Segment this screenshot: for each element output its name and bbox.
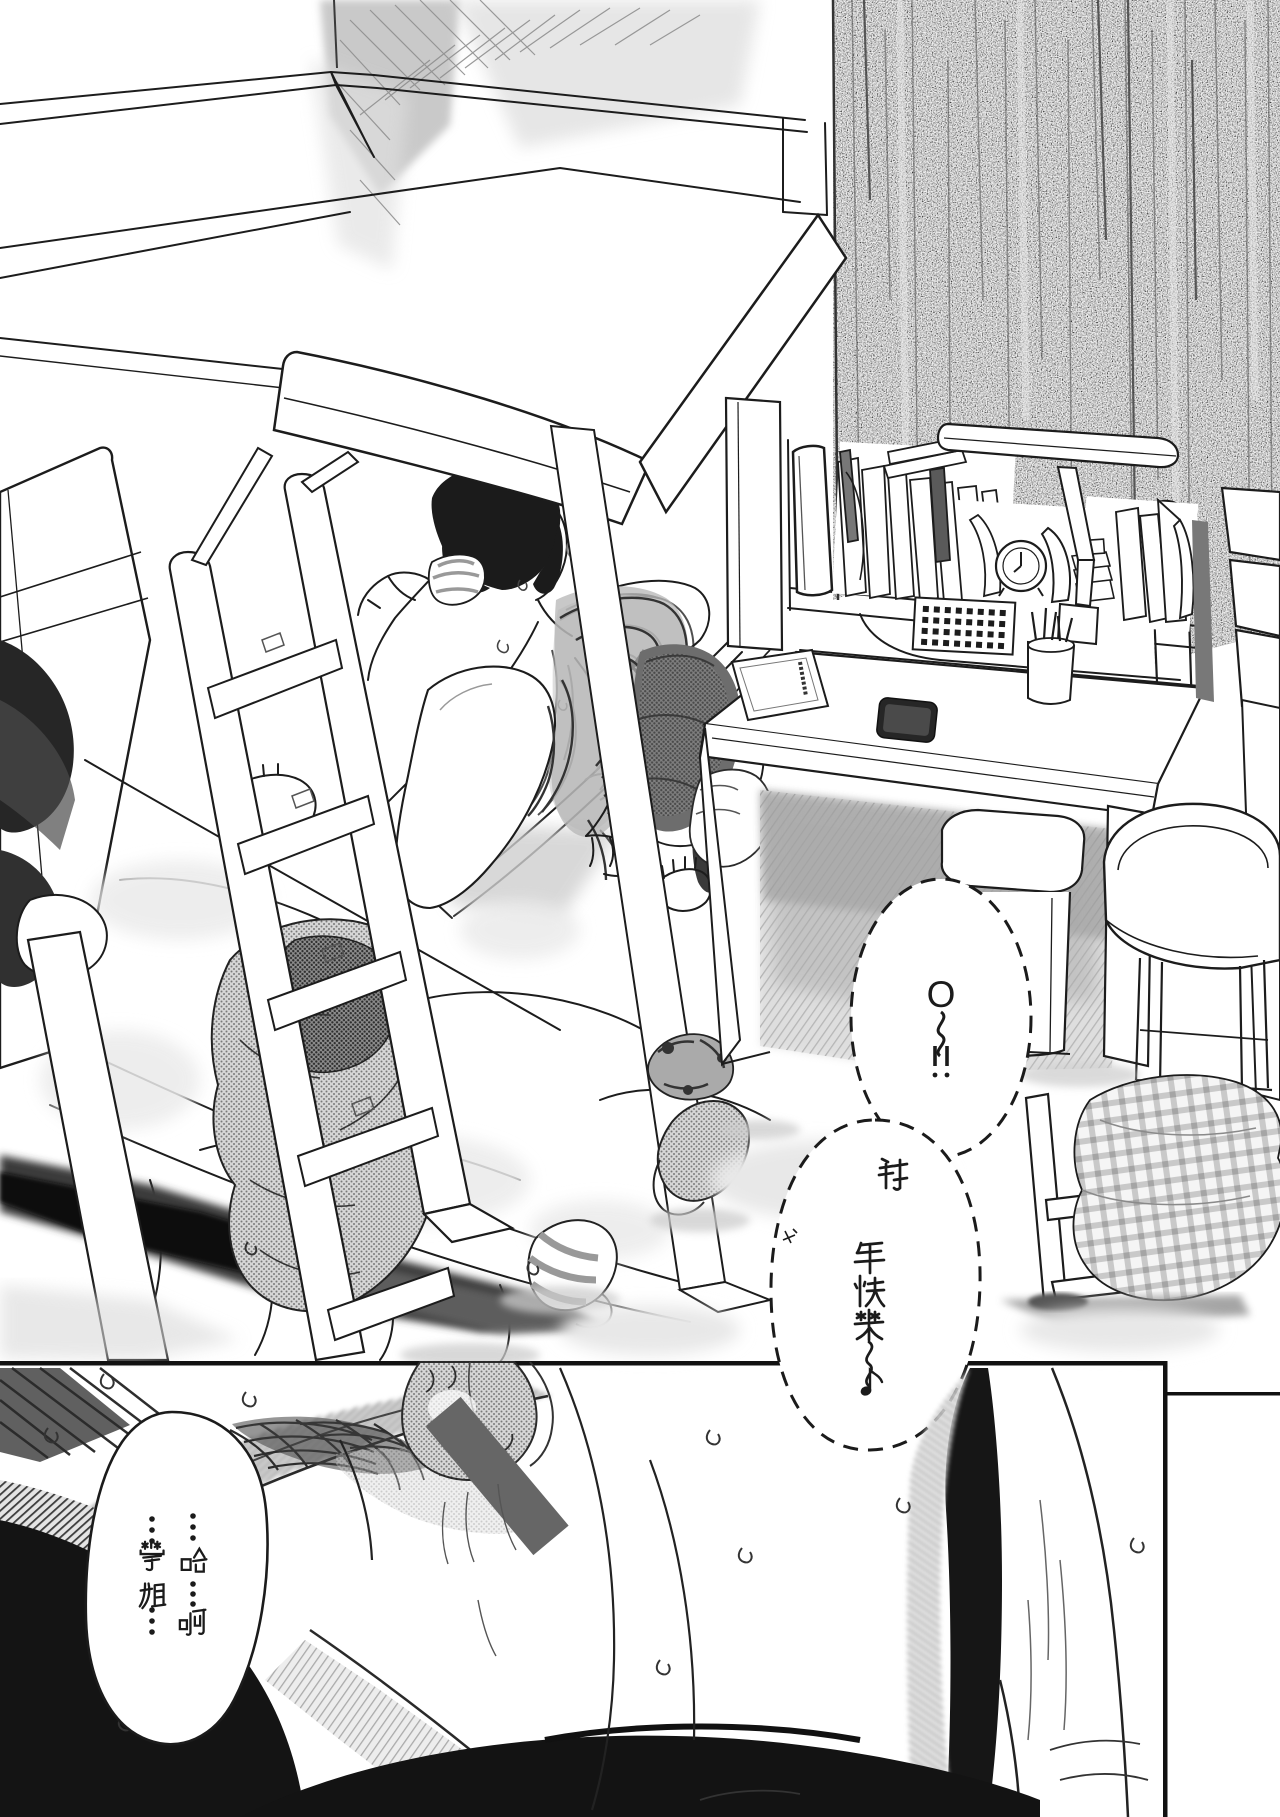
svg-text:O: O [927, 974, 956, 1015]
